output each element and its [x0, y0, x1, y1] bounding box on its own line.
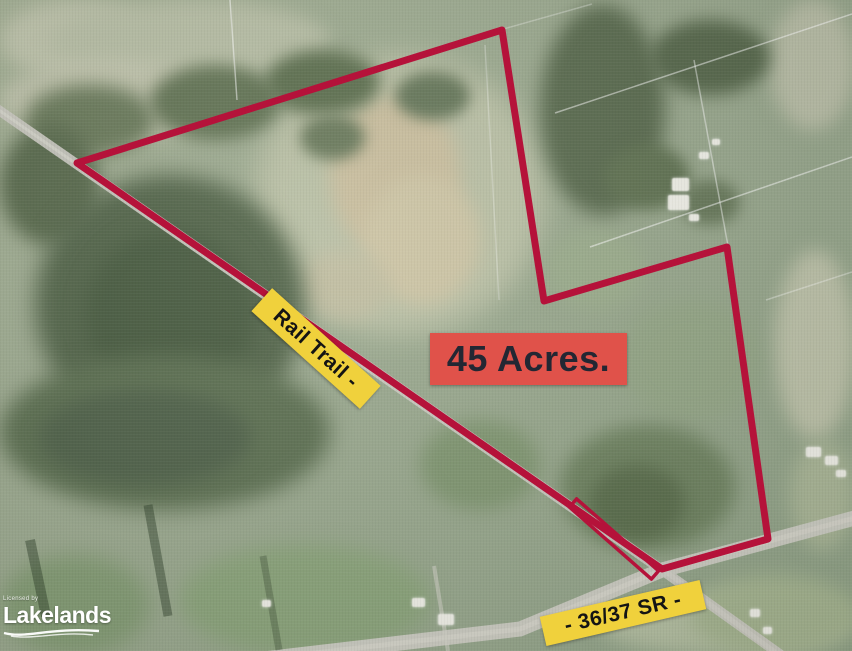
- property-boundary-overlay: [0, 0, 852, 651]
- aerial-map: Rail Trail - 45 Acres. - 36/37 SR - Lice…: [0, 0, 852, 651]
- lakelands-watermark: Licensed by Lakelands: [3, 596, 113, 640]
- acreage-label-text: 45 Acres.: [447, 338, 610, 380]
- watermark-brand: Lakelands: [3, 603, 113, 627]
- acreage-label: 45 Acres.: [430, 333, 627, 385]
- property-boundary: [77, 30, 768, 569]
- wave-swoosh-icon: [3, 626, 101, 640]
- watermark-prefix: Licensed by: [3, 596, 113, 603]
